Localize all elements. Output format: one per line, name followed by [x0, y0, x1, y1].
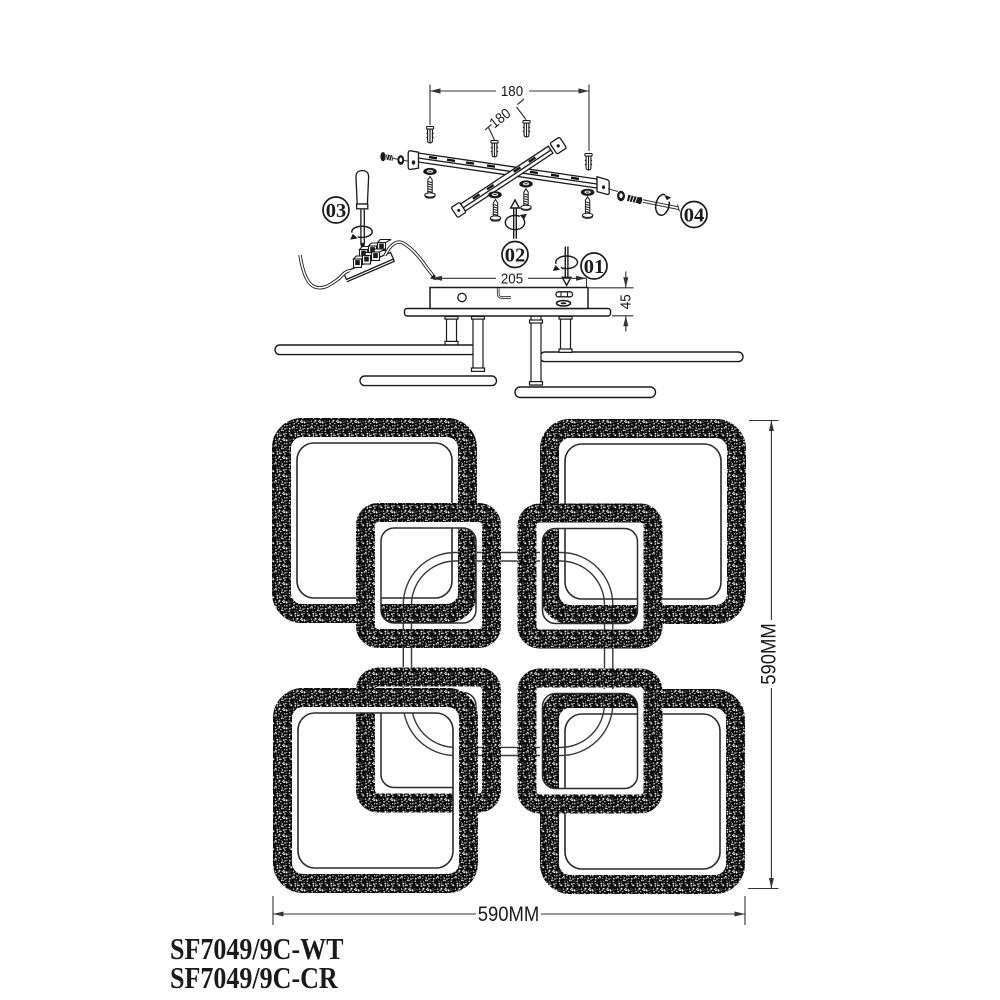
svg-text:180: 180 [501, 82, 523, 99]
svg-text:SF7049/9C-CR: SF7049/9C-CR [170, 961, 338, 996]
svg-text:205: 205 [501, 270, 523, 287]
svg-text:590MM: 590MM [478, 903, 540, 926]
svg-text:590MM: 590MM [757, 623, 780, 685]
svg-text:180: 180 [486, 104, 514, 131]
svg-text:01: 01 [584, 256, 605, 278]
svg-text:02: 02 [505, 245, 526, 267]
svg-text:45: 45 [617, 294, 634, 309]
svg-text:04: 04 [684, 205, 705, 227]
svg-text:03: 03 [326, 200, 347, 222]
